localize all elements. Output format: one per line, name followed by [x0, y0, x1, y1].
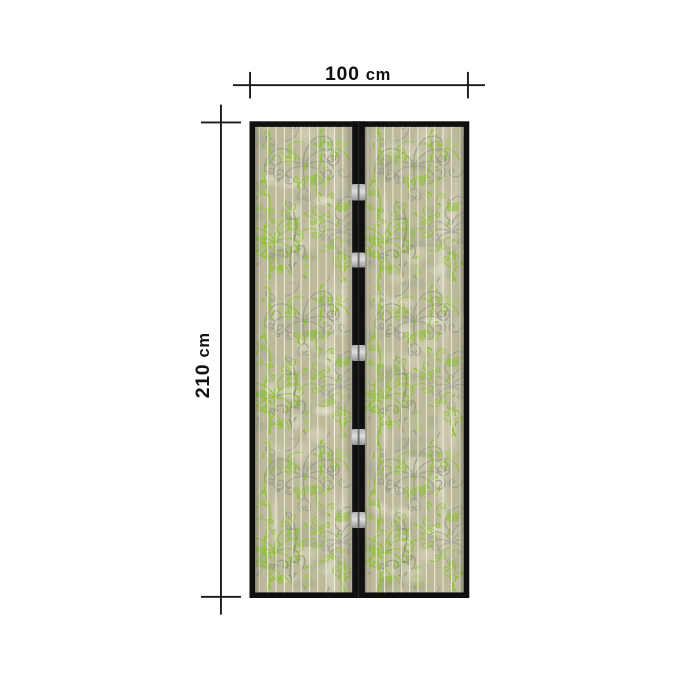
svg-text:100 cm: 100 cm	[325, 63, 391, 85]
svg-text:210 cm: 210 cm	[192, 332, 214, 398]
